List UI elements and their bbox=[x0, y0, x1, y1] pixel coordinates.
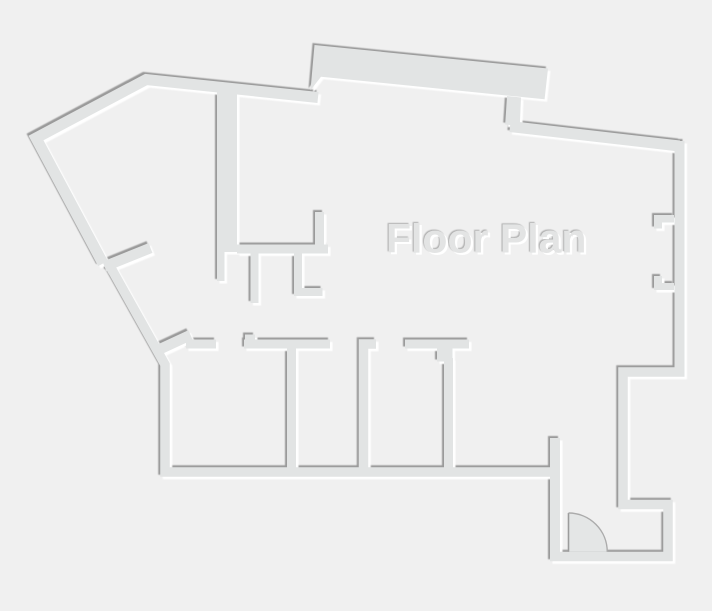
svg-text:Floor Plan: Floor Plan bbox=[386, 216, 586, 262]
